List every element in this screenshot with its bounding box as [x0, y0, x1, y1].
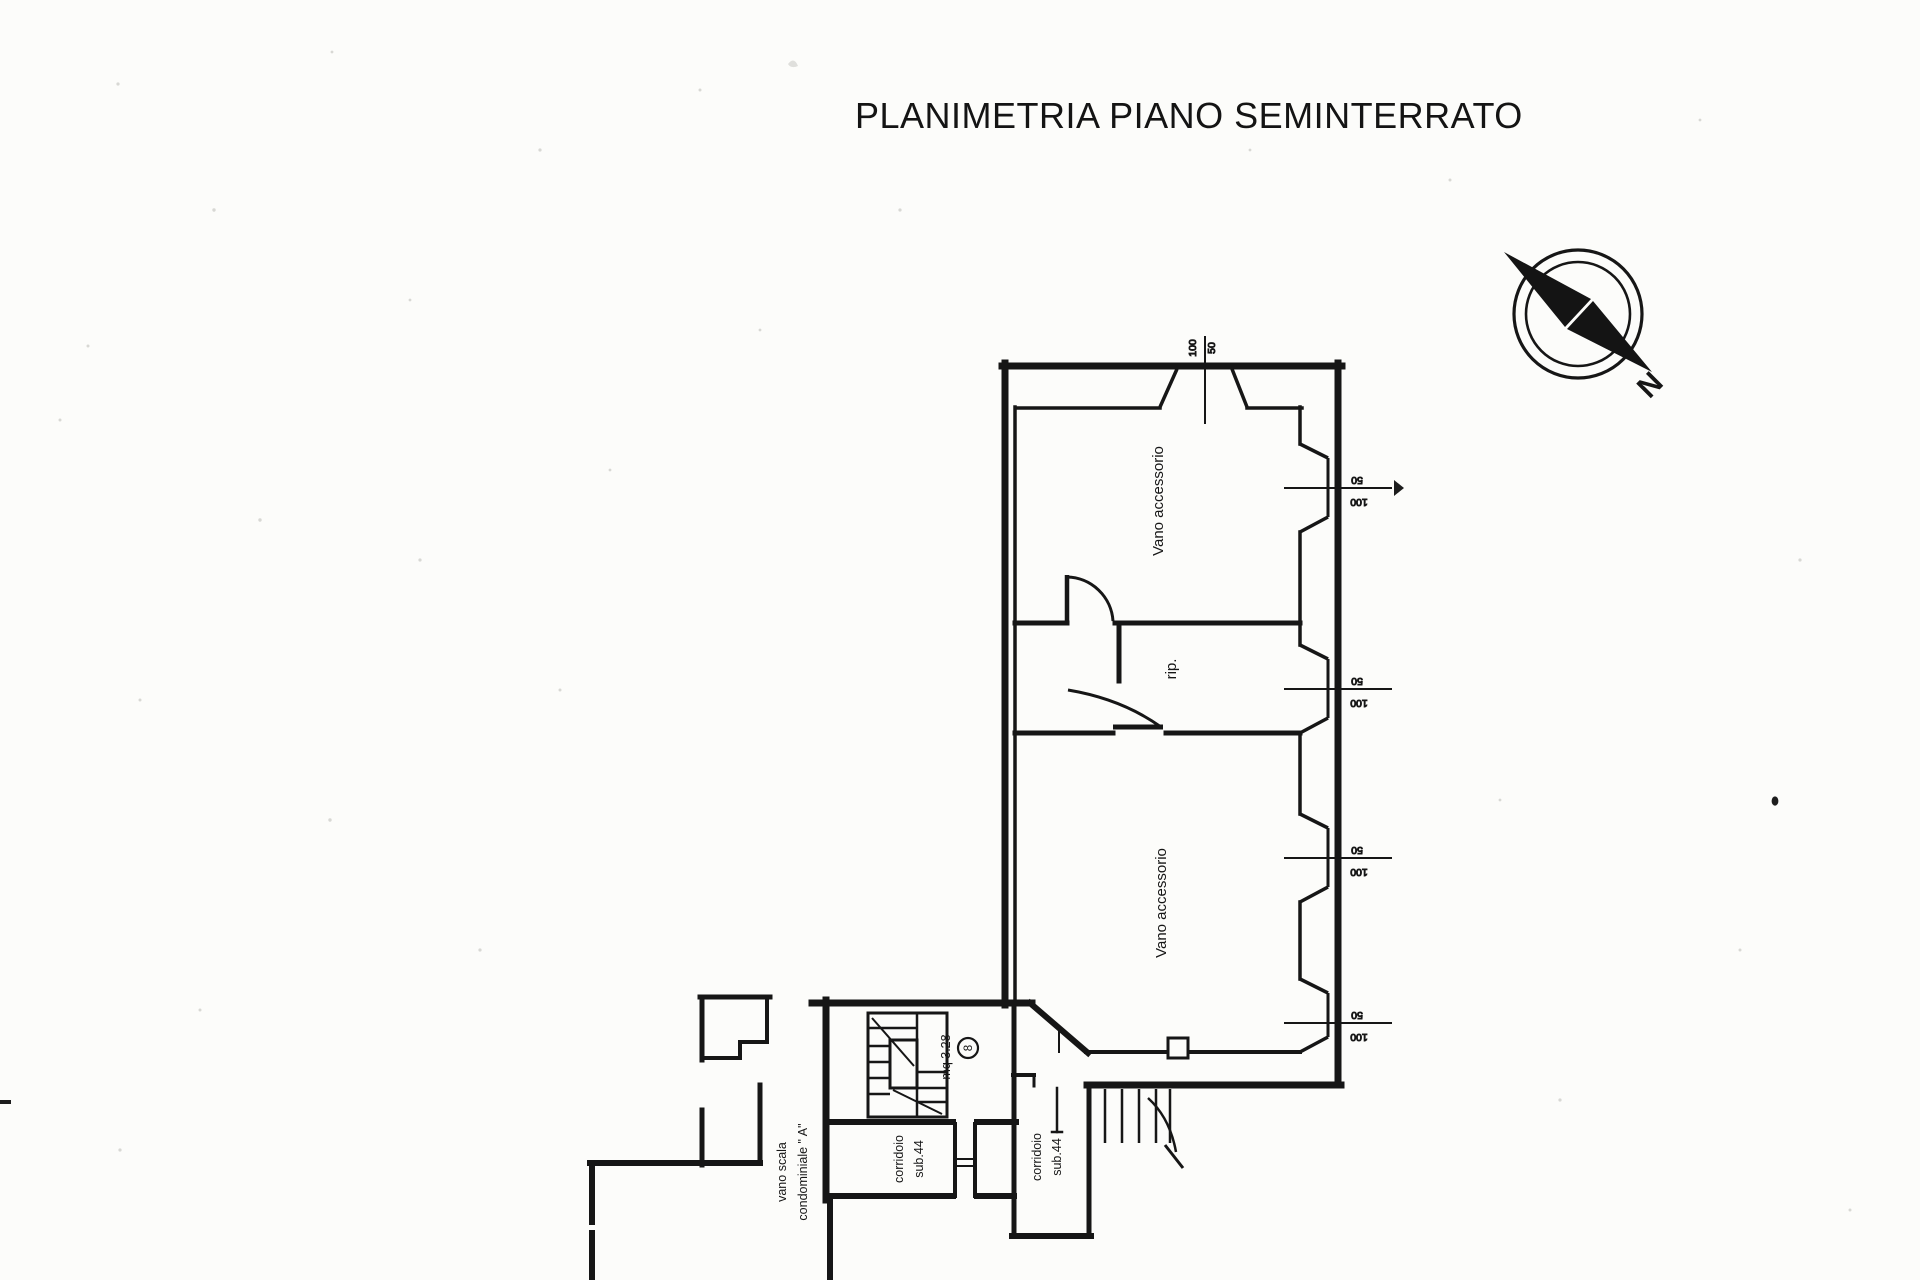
dim-label: 100: [1350, 1031, 1368, 1043]
room-label-rip: rip.: [1163, 659, 1180, 680]
compass-north-label: N: [1631, 366, 1670, 405]
door-arc: [1067, 577, 1113, 621]
right-corridor-passage: [1012, 1032, 1091, 1236]
stair-direction-arrow: [1148, 1098, 1176, 1152]
dim-label: 50: [1351, 474, 1363, 486]
dim-label: 50: [1206, 342, 1218, 354]
u-stair: [868, 1013, 947, 1117]
dim-label: 100: [1350, 697, 1368, 709]
compass-rose: N: [1504, 250, 1670, 405]
arrow-speck: [1394, 480, 1404, 496]
label-corridoio-left-1: corridoio: [892, 1135, 906, 1183]
exterior-stair: [1105, 1089, 1183, 1168]
label-corridoio-right-2: sub.44: [1050, 1138, 1064, 1176]
dim-label: 100: [1350, 866, 1368, 878]
left-corridor-passage: [955, 1122, 975, 1198]
label-vano-scala-1: vano scala: [775, 1142, 789, 1202]
stair-cut-line: [1165, 1145, 1183, 1168]
room-label-vano-top: Vano accessorio: [1150, 446, 1167, 556]
dark-specks: [0, 480, 1778, 1104]
label-mq: mq 3.28: [939, 1034, 953, 1079]
label-corridoio-left-2: sub.44: [912, 1140, 926, 1178]
exterior-walls: [1002, 363, 1342, 1086]
dim-label: 100: [1187, 339, 1199, 357]
dim-label: 50: [1351, 1009, 1363, 1021]
window-top: 100 50: [1160, 336, 1247, 424]
scan-noise: [59, 51, 1852, 1212]
dim-label: 50: [1351, 844, 1363, 856]
door-arc: [1068, 690, 1161, 727]
scanned-floor-plan-page: PLANIMETRIA PIANO SEMINTERRATO: [0, 0, 1920, 1280]
dim-label: 100: [1350, 496, 1368, 508]
label-vano-scala-2: condominiale " A": [796, 1123, 810, 1220]
stair-cut-line: [872, 1018, 914, 1066]
dim-label: 50: [1351, 675, 1363, 687]
floor-plan-drawing: N: [0, 0, 1920, 1280]
door-top-room: [1067, 575, 1113, 623]
wall-pillar-square: [1168, 1038, 1188, 1058]
interior-walls: [1015, 623, 1300, 733]
room-labels: Vano accessorio rip. Vano accessorio mq …: [775, 446, 1180, 1220]
sub-number: 8: [963, 1045, 975, 1051]
label-corridoio-right-1: corridoio: [1030, 1133, 1044, 1181]
door-rip-room: [1068, 690, 1163, 727]
room-label-vano-bottom: Vano accessorio: [1153, 848, 1170, 958]
